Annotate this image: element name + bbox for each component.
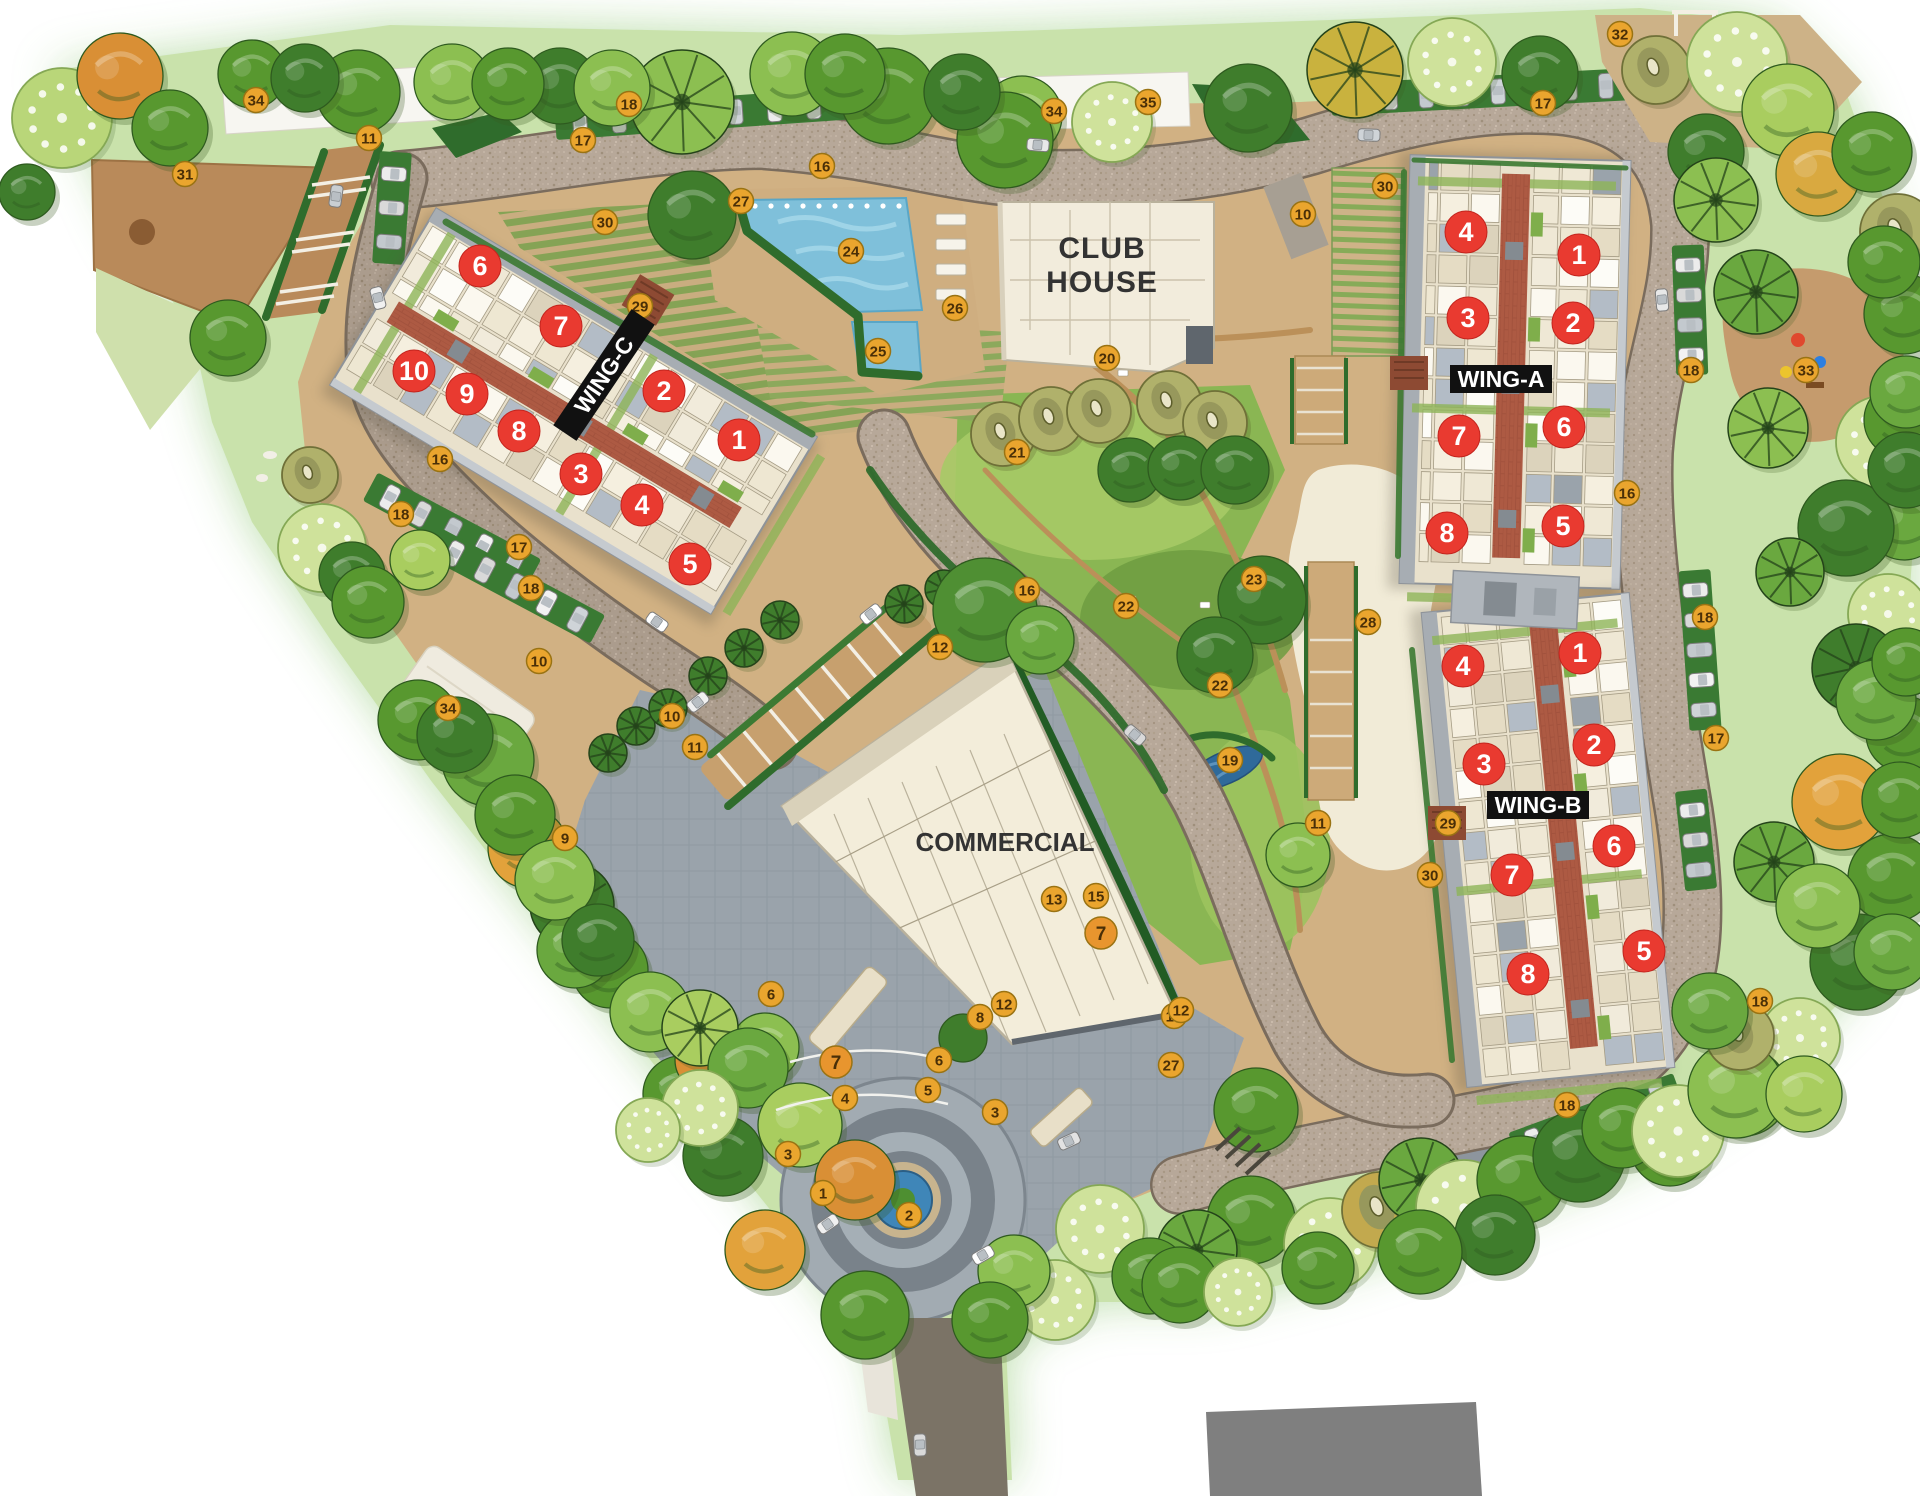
svg-text:18: 18 [1559, 1097, 1576, 1114]
svg-text:29: 29 [1440, 815, 1457, 832]
svg-text:5: 5 [1636, 936, 1651, 966]
svg-text:3: 3 [1476, 749, 1491, 779]
svg-text:4: 4 [841, 1090, 850, 1107]
svg-text:7: 7 [831, 1053, 842, 1074]
svg-text:21: 21 [1009, 444, 1026, 461]
svg-text:18: 18 [1683, 362, 1700, 379]
svg-text:4: 4 [1458, 217, 1473, 247]
svg-text:5: 5 [682, 549, 697, 579]
svg-text:WING-A: WING-A [1458, 366, 1545, 392]
svg-text:22: 22 [1118, 598, 1135, 615]
svg-text:18: 18 [523, 580, 540, 597]
svg-text:11: 11 [687, 739, 703, 756]
svg-text:18: 18 [393, 506, 410, 523]
svg-text:9: 9 [459, 379, 474, 409]
svg-text:20: 20 [1099, 350, 1116, 367]
svg-text:11: 11 [1310, 815, 1326, 832]
svg-text:24: 24 [843, 243, 860, 260]
svg-text:23: 23 [1246, 571, 1263, 588]
svg-text:8: 8 [1439, 518, 1454, 548]
svg-text:COMMERCIAL: COMMERCIAL [915, 827, 1094, 857]
svg-text:10: 10 [664, 708, 681, 725]
svg-text:35: 35 [1140, 94, 1157, 111]
svg-text:28: 28 [1360, 614, 1377, 631]
svg-text:27: 27 [1163, 1057, 1180, 1074]
svg-text:34: 34 [248, 92, 265, 109]
svg-text:17: 17 [1708, 730, 1725, 747]
svg-text:18: 18 [1697, 609, 1714, 626]
svg-text:16: 16 [1619, 485, 1636, 502]
svg-text:3: 3 [573, 459, 588, 489]
svg-text:19: 19 [1222, 752, 1239, 769]
svg-text:2: 2 [905, 1207, 913, 1224]
svg-text:30: 30 [1422, 867, 1439, 884]
svg-text:10: 10 [1295, 206, 1312, 223]
svg-text:2: 2 [1565, 308, 1580, 338]
svg-text:1: 1 [819, 1185, 827, 1202]
svg-text:9: 9 [561, 830, 569, 847]
svg-text:1: 1 [1572, 638, 1587, 668]
svg-text:30: 30 [1377, 178, 1394, 195]
svg-text:10: 10 [531, 653, 548, 670]
svg-text:12: 12 [996, 996, 1013, 1013]
svg-text:16: 16 [814, 158, 831, 175]
svg-text:25: 25 [870, 343, 887, 360]
svg-text:1: 1 [731, 425, 746, 455]
svg-text:30: 30 [597, 214, 614, 231]
svg-text:6: 6 [472, 251, 487, 281]
svg-text:3: 3 [784, 1146, 792, 1163]
svg-text:4: 4 [634, 490, 649, 520]
svg-text:34: 34 [1046, 103, 1063, 120]
svg-text:7: 7 [1451, 421, 1466, 451]
svg-text:7: 7 [1096, 924, 1107, 945]
svg-text:18: 18 [1752, 993, 1769, 1010]
svg-text:8: 8 [1520, 959, 1535, 989]
svg-text:6: 6 [1556, 412, 1571, 442]
svg-text:26: 26 [947, 300, 964, 317]
svg-text:2: 2 [1586, 730, 1601, 760]
svg-text:16: 16 [432, 451, 449, 468]
svg-text:17: 17 [575, 132, 592, 149]
svg-text:WING-B: WING-B [1495, 792, 1582, 818]
svg-text:6: 6 [767, 986, 775, 1003]
svg-text:2: 2 [656, 376, 671, 406]
svg-text:17: 17 [511, 539, 528, 556]
svg-text:4: 4 [1455, 651, 1470, 681]
svg-text:17: 17 [1535, 95, 1552, 112]
svg-text:27: 27 [733, 193, 750, 210]
svg-text:HOUSE: HOUSE [1046, 266, 1158, 299]
svg-text:33: 33 [1798, 362, 1815, 379]
svg-text:3: 3 [1460, 303, 1475, 333]
svg-text:11: 11 [361, 130, 377, 147]
svg-text:7: 7 [1504, 860, 1519, 890]
svg-text:32: 32 [1612, 26, 1629, 43]
svg-text:6: 6 [1606, 831, 1621, 861]
svg-text:3: 3 [991, 1104, 999, 1121]
svg-text:18: 18 [621, 96, 638, 113]
svg-text:13: 13 [1046, 891, 1063, 908]
svg-text:8: 8 [511, 416, 526, 446]
svg-text:1: 1 [1571, 240, 1586, 270]
svg-text:12: 12 [932, 639, 949, 656]
svg-text:8: 8 [976, 1009, 984, 1026]
svg-text:6: 6 [935, 1052, 943, 1069]
svg-text:34: 34 [440, 700, 457, 717]
svg-text:7: 7 [553, 311, 568, 341]
svg-text:10: 10 [399, 356, 429, 386]
svg-text:31: 31 [177, 166, 194, 183]
svg-text:15: 15 [1088, 888, 1105, 905]
svg-text:16: 16 [1019, 582, 1036, 599]
svg-text:22: 22 [1212, 677, 1229, 694]
svg-text:12: 12 [1173, 1002, 1190, 1019]
svg-text:5: 5 [1555, 511, 1570, 541]
svg-text:5: 5 [924, 1082, 932, 1099]
svg-text:CLUB: CLUB [1058, 232, 1145, 265]
